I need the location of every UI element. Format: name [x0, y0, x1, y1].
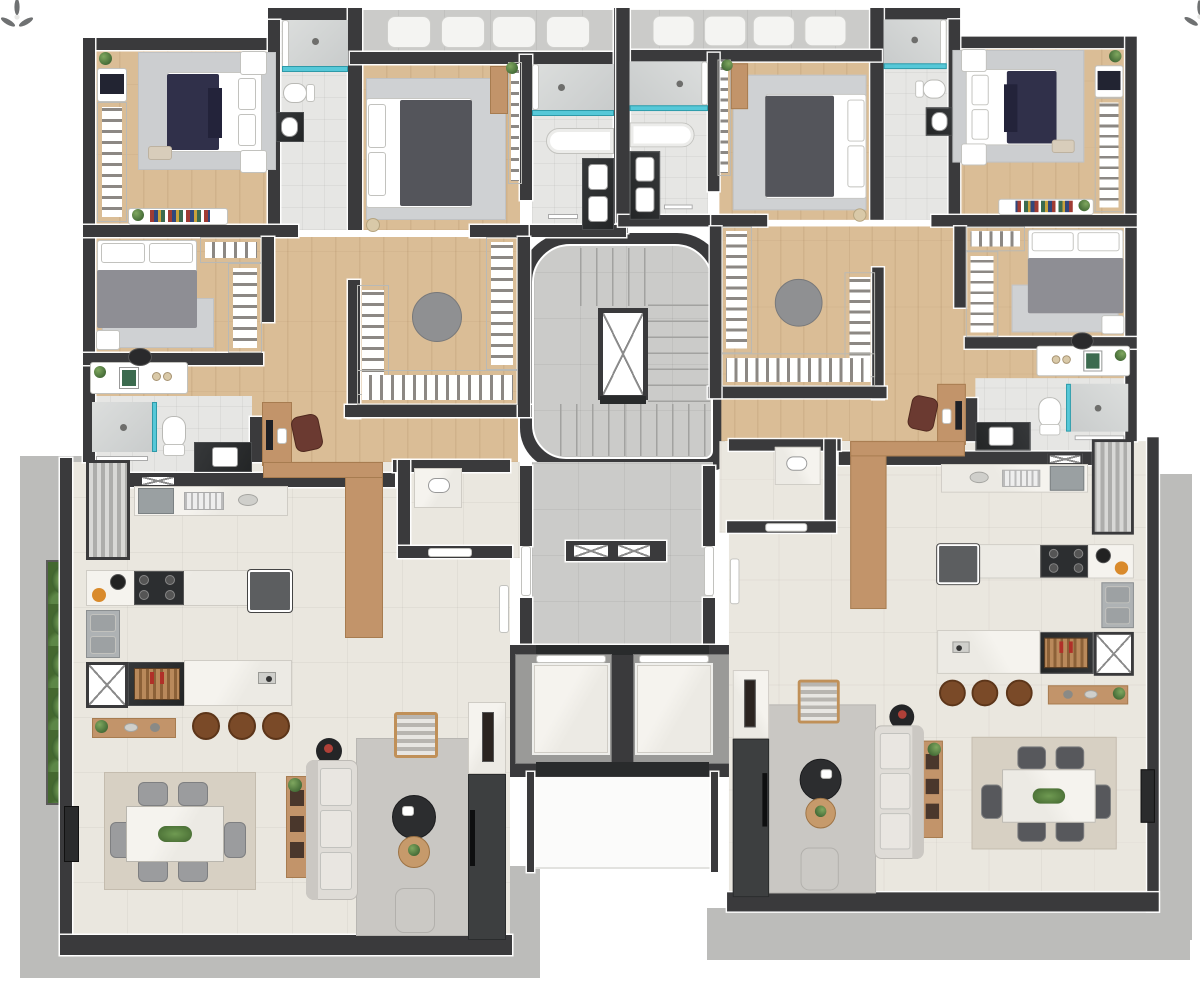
wall	[1147, 437, 1158, 911]
powder-sink	[786, 456, 807, 470]
burner	[1049, 549, 1059, 559]
decor-ring	[1052, 355, 1061, 364]
flower-red	[898, 710, 907, 719]
plant-icon	[815, 806, 826, 817]
bench	[1052, 140, 1075, 153]
sink-basin	[1105, 586, 1130, 603]
pillow	[847, 100, 864, 142]
dining-chair	[1017, 746, 1046, 769]
pillow	[972, 75, 989, 106]
bookcase-cubby	[926, 779, 939, 794]
burner	[1049, 563, 1059, 573]
wall	[626, 50, 882, 61]
dish-rack	[1002, 470, 1040, 487]
fruit-bowl	[1115, 561, 1128, 574]
bar-stool	[1006, 680, 1033, 707]
sofa-cushion	[880, 733, 911, 769]
pillow	[972, 109, 989, 140]
sofa-cushion	[880, 813, 911, 849]
wall	[872, 8, 960, 19]
powder-door	[765, 523, 807, 532]
coffee-maker	[1096, 548, 1111, 563]
floor-plan	[0, 0, 1200, 998]
plant-icon	[1115, 350, 1126, 361]
master-shower	[630, 61, 708, 107]
nightstand	[961, 143, 987, 165]
wall	[949, 37, 1137, 48]
bar-stool	[939, 680, 966, 707]
plant-icon	[721, 60, 732, 71]
burner	[1074, 563, 1084, 573]
wood-divider-h	[850, 441, 965, 456]
closet-wardrobe-right	[721, 226, 752, 353]
nightstand	[961, 49, 987, 72]
nightstand-lamp	[853, 208, 866, 221]
toilet	[923, 80, 946, 99]
sun-lounger	[753, 16, 795, 47]
wall	[931, 215, 1136, 226]
private-elevator	[1094, 632, 1134, 676]
sink	[989, 427, 1014, 446]
ceiling-fan-icon	[1184, 0, 1200, 32]
pillow	[847, 145, 864, 187]
bar-stool	[972, 680, 999, 707]
faucet	[956, 645, 962, 651]
towel-rack	[664, 205, 693, 210]
plant-icon	[928, 743, 941, 756]
centerpiece	[1033, 788, 1065, 803]
floor-pouf	[801, 848, 839, 891]
coffee-table-decor	[821, 769, 832, 779]
kitchen-sink-unit	[1050, 466, 1084, 491]
plant-icon	[1109, 50, 1121, 62]
tv-icon	[1098, 71, 1121, 90]
sink	[931, 112, 947, 131]
master-bench	[731, 63, 748, 109]
entry-door	[730, 558, 740, 604]
wall	[1125, 37, 1136, 441]
shower-head-icon	[911, 37, 918, 44]
bedroom3-bed-duvet	[1028, 258, 1124, 313]
wall	[616, 8, 629, 223]
shower-glass	[1066, 384, 1071, 432]
closet-wardrobe-bottom	[721, 353, 875, 386]
tv-icon	[762, 773, 767, 826]
decor-ring	[1062, 355, 1071, 364]
master-wardrobe	[718, 60, 731, 176]
pillow	[1078, 232, 1120, 251]
coffee-table	[800, 759, 842, 801]
wall-tv	[1141, 769, 1155, 822]
shower-door	[940, 19, 947, 65]
plant-icon	[1113, 687, 1125, 699]
wall	[870, 8, 883, 220]
master-bed-duvet	[765, 96, 834, 197]
fridge	[937, 544, 979, 584]
bookcase-cubby	[926, 804, 939, 819]
wall	[708, 387, 887, 398]
keyboard	[942, 409, 952, 424]
bathtub	[630, 122, 695, 147]
pillow	[1032, 232, 1074, 251]
sink	[635, 157, 654, 182]
closet-pouf	[775, 279, 823, 327]
wall	[708, 215, 767, 226]
grill-handle	[1069, 641, 1073, 652]
shower-head-icon	[1095, 405, 1102, 412]
toilet-tank	[1039, 424, 1060, 435]
bedroom1-wardrobe	[1095, 98, 1124, 212]
nightstand	[1101, 315, 1124, 334]
ceiling-fan-icon	[0, 0, 34, 34]
burner	[1074, 549, 1084, 559]
wood-divider-v	[850, 441, 886, 609]
plant-icon	[1078, 200, 1089, 211]
wall	[954, 226, 965, 307]
decor-tray	[1071, 332, 1094, 349]
bookcase-cubby	[926, 754, 939, 769]
bedroom3-wardrobe-top	[966, 226, 1025, 251]
toilet-tank	[915, 81, 924, 98]
sofa-cushion	[880, 773, 911, 809]
wall	[824, 439, 835, 532]
sun-lounger	[653, 16, 695, 47]
sink	[635, 187, 654, 212]
dining-chair	[981, 785, 1002, 819]
sun-lounger	[804, 16, 846, 47]
shower-glass	[884, 63, 947, 69]
shower-glass	[630, 105, 708, 111]
apartment-right	[70, 0, 1200, 952]
books	[1015, 201, 1072, 212]
deck-chair	[798, 680, 840, 724]
sofa-back	[912, 725, 923, 859]
decor-dish	[1084, 690, 1097, 699]
bedroom1-bed-throw	[1004, 84, 1017, 132]
service-area	[1092, 439, 1134, 534]
shower-head-icon	[676, 81, 683, 88]
monitor-icon	[955, 401, 962, 430]
shower-door	[701, 61, 708, 105]
sink-basin	[1105, 607, 1130, 624]
sun-lounger	[704, 16, 746, 47]
grill-handle	[1059, 641, 1063, 652]
bbq-grill	[1044, 638, 1088, 669]
media-art	[744, 680, 755, 728]
dining-chair	[1056, 746, 1085, 769]
bowl	[970, 472, 989, 483]
photo-frame	[1084, 351, 1101, 370]
bedroom3-wardrobe-side	[966, 251, 998, 337]
wall	[710, 226, 721, 398]
wall	[727, 892, 1159, 911]
decor-dish	[1063, 690, 1073, 699]
